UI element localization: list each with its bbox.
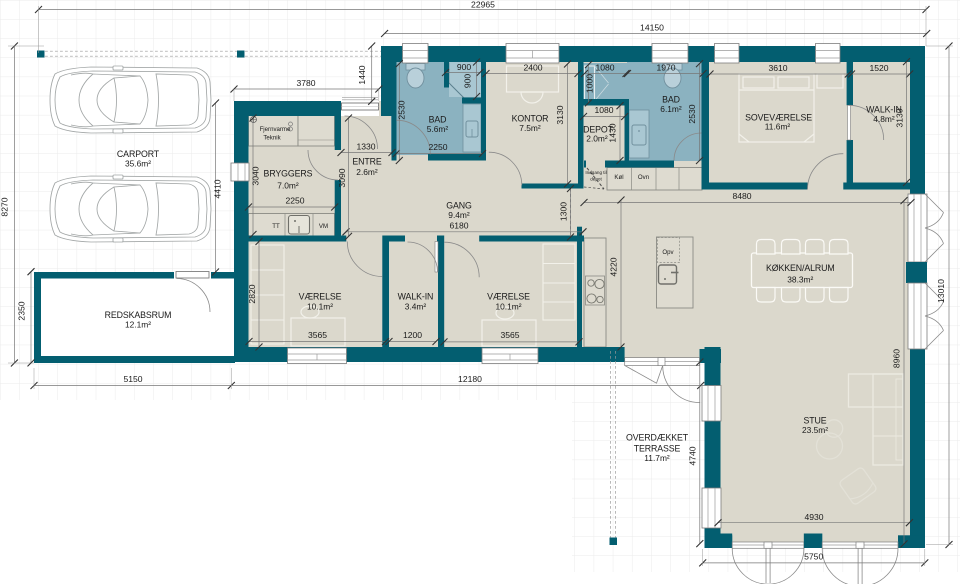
svg-text:900: 900 xyxy=(457,62,472,72)
svg-text:Indgang til: Indgang til xyxy=(585,170,606,175)
svg-text:4930: 4930 xyxy=(804,512,823,522)
svg-text:38.3m²: 38.3m² xyxy=(787,274,813,284)
svg-text:GANG: GANG xyxy=(446,201,472,211)
svg-text:2.0m²: 2.0m² xyxy=(586,134,608,144)
svg-text:4.8m²: 4.8m² xyxy=(873,114,895,124)
svg-text:BAD: BAD xyxy=(662,95,680,105)
svg-text:WALK-IN: WALK-IN xyxy=(398,292,434,302)
svg-text:9.4m²: 9.4m² xyxy=(448,210,470,220)
svg-text:5750: 5750 xyxy=(804,552,823,562)
svg-text:3090: 3090 xyxy=(337,168,347,187)
svg-text:BAD: BAD xyxy=(429,115,447,125)
svg-text:TERRASSE: TERRASSE xyxy=(634,444,681,454)
svg-text:2350: 2350 xyxy=(17,301,27,320)
svg-text:2530: 2530 xyxy=(397,100,407,119)
svg-text:KONTOR: KONTOR xyxy=(512,114,549,124)
svg-text:13010: 13010 xyxy=(936,279,946,303)
svg-text:TT: TT xyxy=(272,223,280,230)
svg-text:35.6m²: 35.6m² xyxy=(125,158,151,168)
svg-text:5150: 5150 xyxy=(123,374,142,384)
svg-text:1080: 1080 xyxy=(595,63,614,73)
svg-text:2820: 2820 xyxy=(247,284,257,303)
svg-text:KØKKEN/ALRUM: KØKKEN/ALRUM xyxy=(766,263,835,273)
svg-text:2.6m²: 2.6m² xyxy=(356,167,378,177)
svg-text:3610: 3610 xyxy=(768,63,787,73)
svg-text:12180: 12180 xyxy=(458,374,482,384)
svg-text:11.6m²: 11.6m² xyxy=(765,122,791,132)
svg-text:1330: 1330 xyxy=(356,142,375,152)
svg-text:2250: 2250 xyxy=(428,142,447,152)
svg-text:8960: 8960 xyxy=(892,349,902,368)
svg-text:900: 900 xyxy=(463,74,473,89)
svg-text:8480: 8480 xyxy=(732,191,751,201)
svg-text:10.1m²: 10.1m² xyxy=(307,302,333,312)
svg-text:4220: 4220 xyxy=(609,257,619,276)
svg-text:1080: 1080 xyxy=(594,105,613,115)
svg-text:Teknik: Teknik xyxy=(263,135,281,142)
svg-text:6.1m²: 6.1m² xyxy=(660,104,682,114)
svg-text:OVERDÆKKET: OVERDÆKKET xyxy=(626,433,689,443)
svg-text:10.1m²: 10.1m² xyxy=(495,302,521,312)
svg-text:22965: 22965 xyxy=(471,0,495,9)
svg-text:1520: 1520 xyxy=(869,63,888,73)
svg-text:12.1m²: 12.1m² xyxy=(125,319,151,329)
svg-text:STUE: STUE xyxy=(803,416,826,426)
svg-text:VÆRELSE: VÆRELSE xyxy=(487,292,530,302)
svg-text:2530: 2530 xyxy=(687,104,697,123)
svg-text:3130: 3130 xyxy=(555,105,565,124)
svg-text:5.6m²: 5.6m² xyxy=(427,124,449,134)
svg-text:4740: 4740 xyxy=(687,446,697,465)
svg-text:2250: 2250 xyxy=(285,196,304,206)
svg-text:7.0m²: 7.0m² xyxy=(277,181,299,191)
svg-text:1440: 1440 xyxy=(357,65,367,84)
svg-text:11.7m²: 11.7m² xyxy=(644,453,670,463)
svg-text:7.5m²: 7.5m² xyxy=(519,123,541,133)
svg-text:14150: 14150 xyxy=(640,23,664,33)
svg-text:4410: 4410 xyxy=(213,179,223,198)
svg-text:23.5m²: 23.5m² xyxy=(802,425,828,435)
svg-text:WALK-IN: WALK-IN xyxy=(866,105,902,115)
svg-text:Køl: Køl xyxy=(614,174,623,181)
svg-text:3565: 3565 xyxy=(308,330,327,340)
svg-text:Ovn: Ovn xyxy=(638,174,649,181)
svg-text:8270: 8270 xyxy=(0,197,10,216)
svg-text:VÆRELSE: VÆRELSE xyxy=(299,292,342,302)
svg-text:1000: 1000 xyxy=(585,74,595,93)
svg-text:3565: 3565 xyxy=(500,330,519,340)
svg-text:depot: depot xyxy=(590,177,602,182)
svg-text:3780: 3780 xyxy=(296,78,315,88)
svg-text:3.4m²: 3.4m² xyxy=(405,302,427,312)
svg-text:6180: 6180 xyxy=(449,220,468,230)
svg-text:1200: 1200 xyxy=(403,330,422,340)
svg-text:ENTRE: ENTRE xyxy=(352,157,382,167)
svg-text:1300: 1300 xyxy=(559,202,569,221)
svg-text:VM: VM xyxy=(319,223,328,230)
svg-text:Fjernvarme: Fjernvarme xyxy=(260,126,291,133)
svg-text:BRYGGERS: BRYGGERS xyxy=(264,169,313,179)
svg-text:2400: 2400 xyxy=(523,63,542,73)
svg-text:1970: 1970 xyxy=(656,63,675,73)
svg-text:Opv: Opv xyxy=(662,249,674,256)
svg-text:3040: 3040 xyxy=(251,166,261,185)
